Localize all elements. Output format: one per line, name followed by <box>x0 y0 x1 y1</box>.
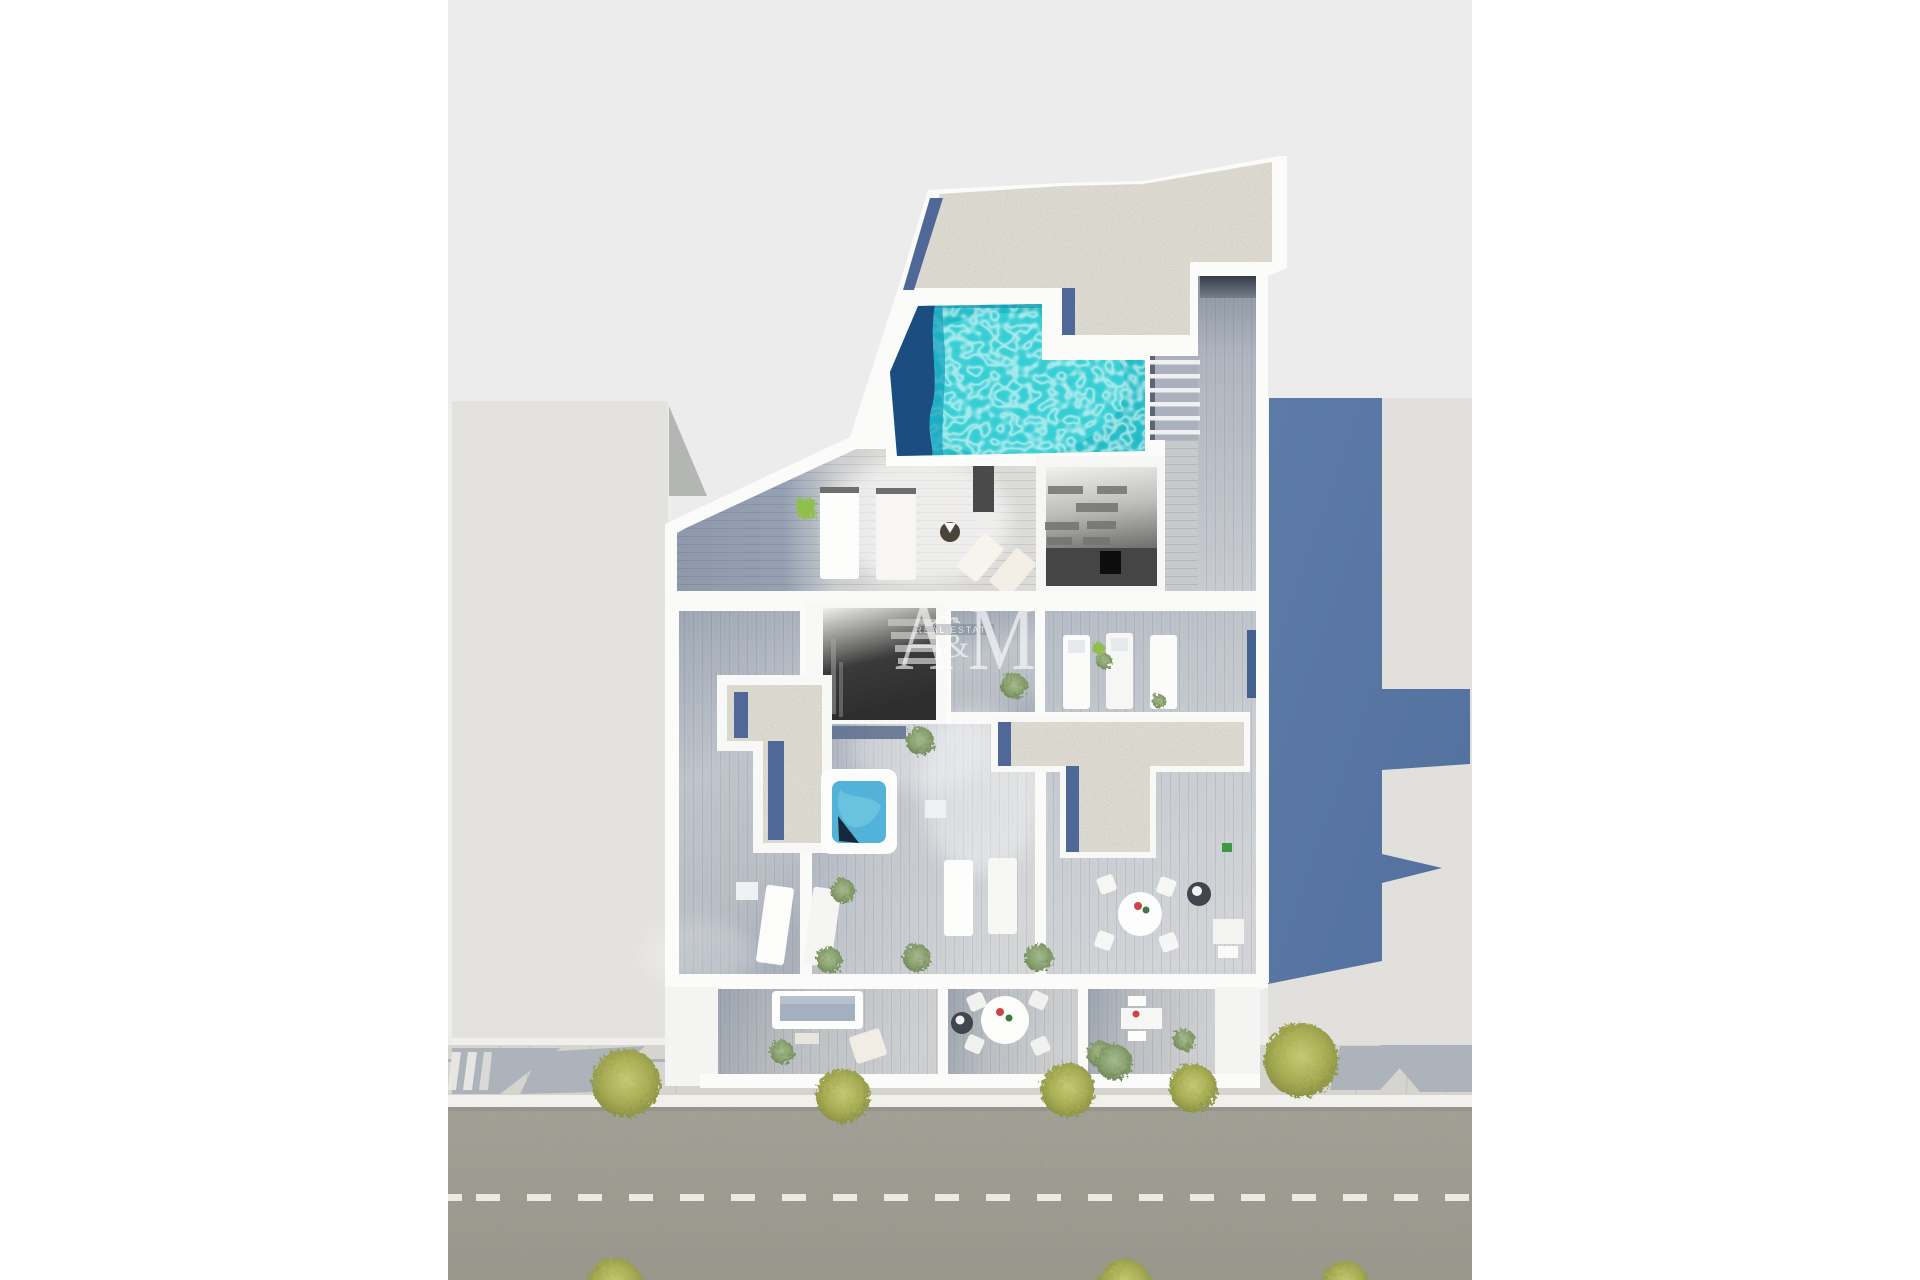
svg-text:M: M <box>968 587 1036 689</box>
svg-text:REAL ESTATE: REAL ESTATE <box>915 625 994 635</box>
